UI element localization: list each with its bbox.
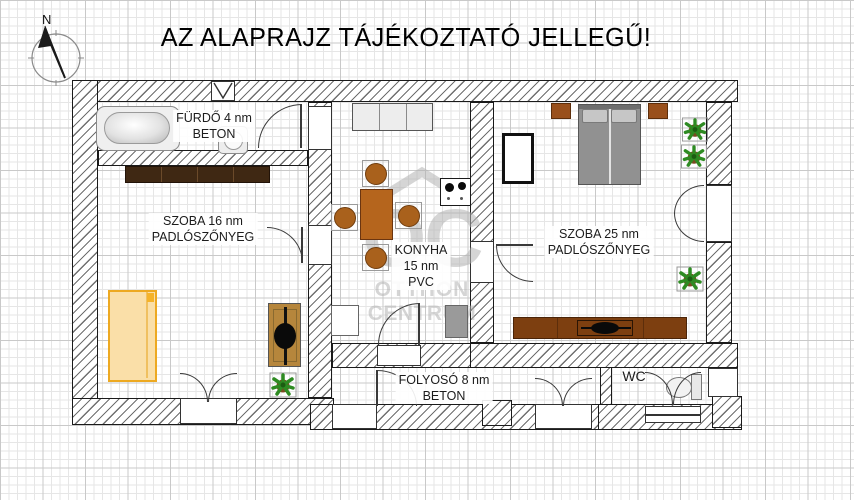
vent-window-icon: [212, 82, 234, 100]
room25-wardrobe-frame: [502, 133, 534, 184]
watermark-line2: CENTRUM: [352, 302, 492, 326]
wc-window: [645, 406, 701, 423]
bathroom-vent-window: [211, 81, 235, 101]
bathroom-name: FÜRDŐ 4 nm: [176, 110, 252, 126]
kitchen-chair-seat: [398, 205, 420, 227]
room-label-wc: WC: [619, 368, 648, 384]
wall-right-mid: [706, 242, 732, 343]
room25-name: SZOBA 25 nm: [548, 226, 651, 242]
hallway-floor-type: BETON: [399, 388, 490, 404]
kitchen-hallway-door-opening: [377, 345, 421, 366]
room16-bed-fold-line: [146, 292, 148, 378]
wc-name: WC: [622, 368, 645, 384]
entrance-door-opening: [332, 404, 377, 429]
room16-door-opening: [308, 225, 332, 265]
nightstand-right: [648, 103, 668, 119]
room25-potted-plant-1: [681, 117, 709, 142]
kitchen-counter: [352, 103, 433, 131]
stove-knob: [460, 197, 463, 200]
room16-bed: [108, 290, 157, 382]
north-compass-icon: N: [18, 12, 94, 90]
room-label-hallway: FOLYOSÓ 8 nm BETON: [396, 372, 493, 404]
room16-chair: [274, 323, 296, 349]
room25-potted-plant-2: [680, 144, 708, 169]
kitchen-chair-seat: [365, 247, 387, 269]
kitchen-name: KONYHA: [395, 242, 448, 258]
room16-french-door-arc-right: [208, 373, 237, 402]
room16-door-leaf: [301, 227, 303, 263]
washing-machine: [331, 305, 359, 336]
room16-floor-type: PADLÓSZŐNYEG: [152, 229, 255, 245]
bathtub: [96, 106, 180, 151]
room16-name: SZOBA 16 nm: [152, 213, 255, 229]
room25-double-bed: [578, 104, 641, 185]
wall-left: [72, 80, 98, 425]
compass-north-label: N: [42, 12, 51, 27]
kitchen-door-leaf: [418, 303, 420, 345]
kitchen-chair-right: [395, 202, 422, 229]
potted-plant-icon: [681, 117, 709, 142]
wc-window-midline: [646, 414, 700, 416]
bathtub-basin: [104, 112, 170, 144]
room16-potted-plant: [268, 372, 298, 398]
kitchen-chair-bottom: [362, 244, 389, 271]
room25-floor-type: PADLÓSZŐNYEG: [548, 242, 651, 258]
stove-burner: [445, 183, 454, 192]
bathroom-floor-type: BETON: [176, 126, 252, 142]
bed-pillow-right: [611, 109, 637, 123]
room-label-room16: SZOBA 16 nm PADLÓSZŐNYEG: [149, 213, 258, 245]
wall-top: [72, 80, 738, 102]
kitchen-chair-top: [362, 160, 389, 187]
bathroom-door-arc: [258, 104, 302, 148]
bed-center-split: [609, 109, 611, 184]
wall-room25-bottom: [470, 343, 738, 368]
room-label-room25: SZOBA 25 nm PADLÓSZŐNYEG: [545, 226, 654, 258]
potted-plant-icon: [676, 266, 704, 292]
bathroom-door-leaf: [300, 104, 302, 148]
fridge: [445, 305, 468, 338]
kitchen-chair-seat: [334, 207, 356, 229]
room16-wardrobe: [125, 166, 270, 183]
potted-plant-icon: [680, 144, 708, 169]
bed-pillow-left: [582, 109, 608, 123]
wall-right-upper: [706, 102, 732, 185]
sideboard-divider: [643, 318, 644, 338]
room25-door-leaf: [496, 244, 533, 246]
potted-plant-icon: [268, 372, 298, 398]
room25-potted-plant-3: [676, 266, 704, 292]
stove: [440, 178, 471, 206]
wc-door-arc-left: [645, 372, 673, 405]
stove-burner: [458, 182, 466, 190]
wall-bathroom-room16: [98, 150, 308, 166]
sideboard-divider: [557, 318, 558, 338]
room16-french-door-arc-left: [180, 373, 208, 402]
nightstand-left: [551, 103, 571, 119]
room25-sideboard: [513, 317, 687, 339]
room16-door-arc: [267, 227, 303, 263]
floor-plan-canvas: AZ ALAPRAJZ TÁJÉKOZTATÓ JELLEGŰ! N OC OT…: [0, 0, 854, 500]
room-label-bathroom: FÜRDŐ 4 nm BETON: [173, 110, 255, 142]
room16-bed-pillow: [147, 293, 154, 302]
hallway-french-door-opening: [535, 404, 592, 429]
wc-side-opening: [708, 368, 738, 397]
hallway-french-door-arc-right: [563, 378, 592, 406]
kitchen-table: [360, 189, 393, 240]
balcony-door-arc-top: [674, 185, 704, 214]
entrance-door-leaf: [376, 370, 378, 406]
kitchen-chair-left: [331, 204, 358, 231]
kitchen-size: 15 nm: [395, 258, 448, 274]
kitchen-chair-seat: [365, 163, 387, 185]
room25-door-arc: [496, 245, 533, 282]
room-label-kitchen: KONYHA 15 nm PVC: [392, 242, 451, 290]
wall-corner-pillar: [712, 396, 742, 428]
plan-disclaimer-title: AZ ALAPRAJZ TÁJÉKOZTATÓ JELLEGŰ!: [161, 22, 652, 53]
balcony-door-opening: [706, 185, 732, 242]
tv: [591, 322, 619, 334]
hallway-name: FOLYOSÓ 8 nm: [399, 372, 490, 388]
bathroom-door-opening: [308, 106, 332, 150]
stove-knob: [447, 197, 450, 200]
hallway-french-door-arc-left: [535, 378, 563, 406]
room16-desk: [268, 303, 301, 367]
balcony-door-arc-bottom: [674, 213, 704, 242]
kitchen-floor-type: PVC: [395, 274, 448, 290]
